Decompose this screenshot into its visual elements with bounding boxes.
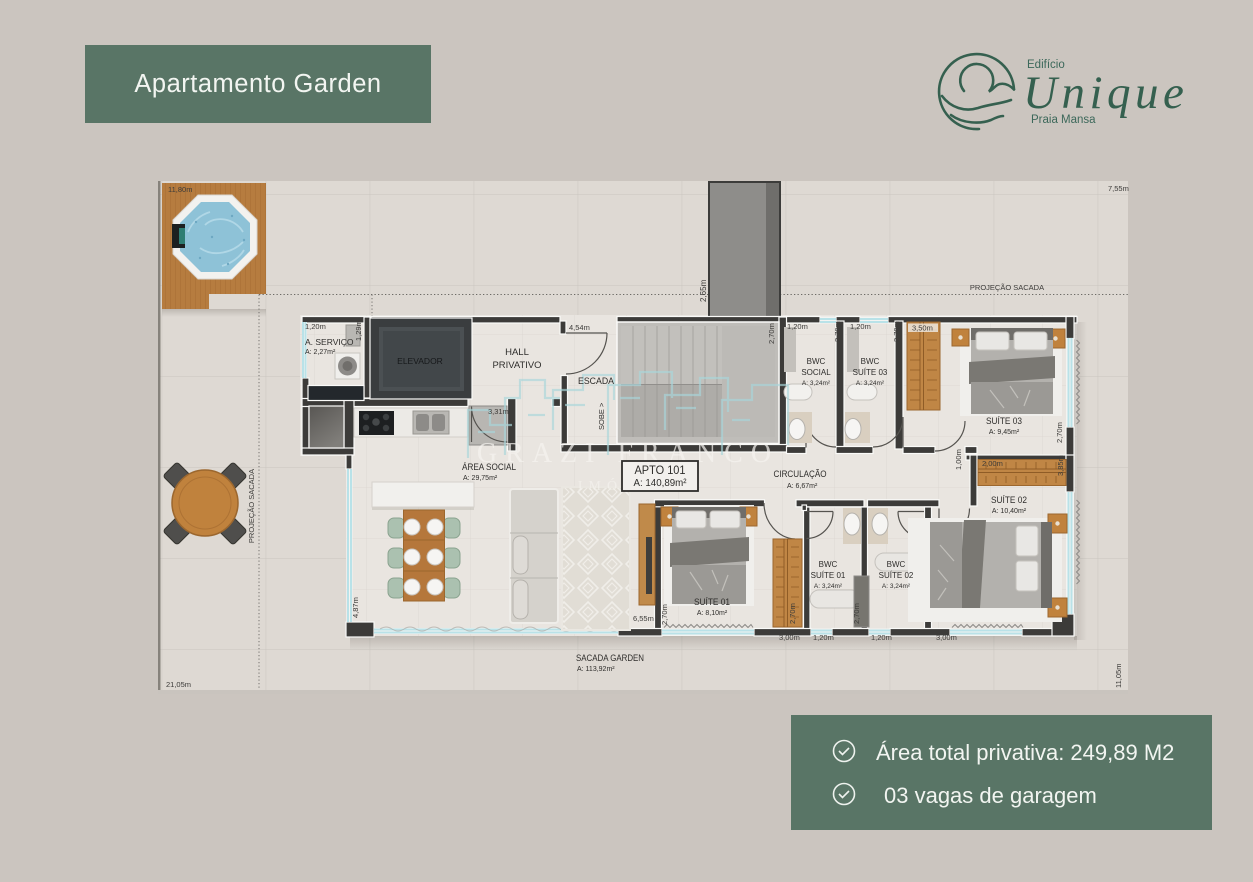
svg-text:2,70m: 2,70m [1055, 422, 1064, 443]
svg-text:A: 29,75m²: A: 29,75m² [463, 475, 498, 482]
svg-text:SOCIAL: SOCIAL [801, 368, 831, 377]
svg-text:1,00m: 1,00m [954, 449, 963, 470]
svg-text:11,05m: 11,05m [1114, 664, 1123, 688]
svg-text:1,20m: 1,20m [850, 322, 871, 331]
svg-text:BWC: BWC [807, 357, 826, 366]
svg-text:4,87m: 4,87m [351, 597, 360, 618]
svg-text:1,20m: 1,20m [813, 633, 834, 642]
svg-text:A: 6,67m²: A: 6,67m² [787, 483, 818, 490]
svg-text:2,65m: 2,65m [699, 279, 708, 302]
svg-text:1,20m: 1,20m [871, 633, 892, 642]
svg-text:4,54m: 4,54m [569, 323, 590, 332]
svg-text:A: 140,89m²: A: 140,89m² [634, 477, 687, 489]
svg-text:1,20m: 1,20m [787, 322, 808, 331]
svg-text:ELEVADOR: ELEVADOR [397, 356, 443, 366]
svg-text:A: 10,40m²: A: 10,40m² [992, 508, 1027, 515]
svg-text:1,29m: 1,29m [354, 320, 363, 341]
svg-text:3,85m: 3,85m [1056, 455, 1065, 476]
svg-text:2,70m: 2,70m [892, 321, 901, 342]
svg-text:11,80m: 11,80m [168, 185, 192, 194]
svg-text:3,00m: 3,00m [936, 633, 957, 642]
svg-text:3,31m: 3,31m [488, 407, 509, 416]
svg-text:PROJEÇÃO SACADA: PROJEÇÃO SACADA [247, 469, 256, 543]
svg-text:3,50m: 3,50m [912, 324, 933, 333]
svg-text:2,70m: 2,70m [767, 323, 776, 344]
svg-text:SUÍTE 02: SUÍTE 02 [991, 495, 1027, 506]
svg-text:A: 3,24m²: A: 3,24m² [814, 583, 843, 590]
svg-text:2,70m: 2,70m [660, 604, 669, 625]
svg-text:SUÍTE 03: SUÍTE 03 [853, 368, 888, 377]
svg-text:ÁREA SOCIAL: ÁREA SOCIAL [462, 462, 516, 473]
svg-text:SUÍTE 03: SUÍTE 03 [986, 416, 1022, 427]
svg-text:A. SERVIÇO: A. SERVIÇO [305, 337, 354, 347]
svg-text:HALL: HALL [505, 347, 529, 358]
svg-text:21,05m: 21,05m [166, 680, 191, 689]
svg-text:PROJEÇÃO SACADA: PROJEÇÃO SACADA [970, 283, 1044, 292]
svg-text:BWC: BWC [887, 560, 906, 569]
svg-text:SUÍTE 01: SUÍTE 01 [811, 571, 846, 580]
svg-text:SUÍTE 01: SUÍTE 01 [694, 597, 730, 608]
svg-text:6,55m: 6,55m [633, 614, 654, 623]
svg-text:A: 113,92m²: A: 113,92m² [577, 666, 615, 673]
svg-text:APTO 101: APTO 101 [635, 465, 686, 477]
svg-text:PRIVATIVO: PRIVATIVO [493, 360, 542, 371]
svg-text:2,70m: 2,70m [852, 603, 861, 624]
svg-text:3,00m: 3,00m [779, 633, 800, 642]
svg-text:A: 3,24m²: A: 3,24m² [856, 380, 885, 387]
svg-text:CIRCULAÇÃO: CIRCULAÇÃO [774, 469, 827, 480]
svg-text:2,70m: 2,70m [833, 321, 842, 342]
svg-text:BWC: BWC [861, 357, 880, 366]
svg-text:A: 2,27m²: A: 2,27m² [305, 349, 336, 356]
svg-text:SOBE >: SOBE > [597, 402, 606, 430]
svg-text:A: 3,24m²: A: 3,24m² [882, 583, 911, 590]
svg-text:ESCADA: ESCADA [578, 376, 615, 387]
svg-text:A: 3,24m²: A: 3,24m² [802, 380, 831, 387]
svg-text:BWC: BWC [819, 560, 838, 569]
svg-text:2,00m: 2,00m [982, 459, 1003, 468]
svg-text:A: 9,45m²: A: 9,45m² [989, 429, 1020, 436]
svg-text:2,70m: 2,70m [788, 603, 797, 624]
svg-text:A: 8,10m²: A: 8,10m² [697, 610, 728, 617]
svg-text:SACADA GARDEN: SACADA GARDEN [576, 653, 644, 664]
svg-text:1,20m: 1,20m [305, 322, 326, 331]
svg-text:7,55m: 7,55m [1108, 184, 1129, 193]
svg-text:SUÍTE 02: SUÍTE 02 [879, 571, 914, 580]
